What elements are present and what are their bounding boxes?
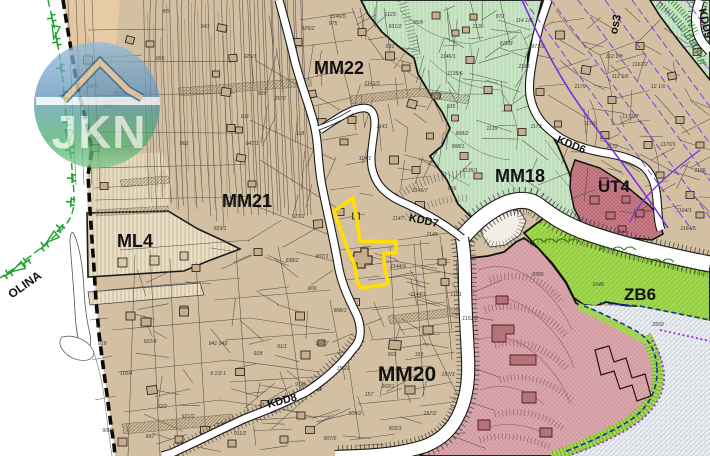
svg-text:1139: 1139 [486,126,497,132]
svg-text:923/2: 923/2 [292,214,305,220]
svg-text:1170/1: 1170/1 [660,142,676,148]
svg-text:157: 157 [365,392,375,398]
svg-text:8356: 8356 [532,272,544,278]
svg-text:902/3: 902/3 [389,426,402,432]
svg-text:1141/2: 1141/2 [364,81,380,87]
svg-text:1164/1: 1164/1 [676,208,692,214]
svg-text:1648: 1648 [592,282,604,288]
svg-text:909/2: 909/2 [349,411,362,417]
svg-text:1171/3: 1171/3 [622,114,638,120]
svg-text:911: 911 [241,114,249,120]
svg-text:911/2: 911/2 [234,431,247,437]
svg-text:931/2: 931/2 [389,24,402,30]
svg-text:921/2: 921/2 [182,414,195,420]
svg-text:902/1: 902/1 [382,384,395,390]
svg-text:935: 935 [447,104,456,110]
svg-text:155: 155 [415,352,424,358]
svg-text:907/1: 907/1 [316,254,329,260]
svg-text:1146/5: 1146/5 [330,14,346,20]
svg-text:908/7: 908/7 [316,341,330,347]
svg-text:923/4: 923/4 [224,201,237,207]
svg-text:1151: 1151 [450,292,461,298]
svg-text:962: 962 [180,141,189,147]
svg-text:116/4: 116/4 [120,371,133,377]
svg-text:1144/9: 1144/9 [390,264,406,270]
svg-text:947/1: 947/1 [246,141,259,147]
svg-text:1167/2: 1167/2 [632,62,648,68]
svg-text:931: 931 [386,44,395,50]
svg-text:955: 955 [156,56,165,62]
svg-text:112 1/6: 112 1/6 [612,74,629,80]
svg-text:897: 897 [146,434,156,440]
svg-text:1164/5: 1164/5 [680,226,696,232]
svg-text:939: 939 [258,91,267,97]
svg-text:925/2: 925/2 [302,26,315,32]
svg-text:ML4: ML4 [117,231,153,251]
svg-text:117/1: 117/1 [584,121,597,127]
svg-text:1165: 1165 [694,168,705,174]
svg-text:2572: 2572 [273,96,286,102]
svg-text:1148: 1148 [426,232,437,238]
svg-text:941 942: 941 942 [209,341,228,347]
svg-text:923/1: 923/1 [214,226,227,232]
svg-text:972: 972 [496,14,505,20]
svg-text:157/3: 157/3 [442,372,455,378]
svg-text:919: 919 [98,341,107,347]
svg-text:922/4: 922/4 [144,339,157,345]
svg-text:91/1: 91/1 [277,344,287,350]
svg-text:1146/1: 1146/1 [440,54,456,60]
svg-text:1135: 1135 [518,64,529,70]
svg-text:1136: 1136 [472,24,483,30]
svg-text:1135/1: 1135/1 [462,168,478,174]
svg-text:1141: 1141 [376,124,387,130]
svg-text:112 1/8: 112 1/8 [606,54,623,60]
svg-text:MM18: MM18 [495,166,545,186]
svg-text:91/8: 91/8 [295,382,305,388]
svg-text:966: 966 [448,186,457,192]
svg-text:975: 975 [329,21,338,27]
svg-text:1135/6: 1135/6 [447,71,463,77]
svg-text:1147: 1147 [392,216,404,222]
svg-text:118: 118 [296,131,304,137]
svg-text:903: 903 [388,352,397,358]
svg-text:968/2: 968/2 [456,131,469,137]
svg-text:9 1/3 1: 9 1/3 1 [210,371,226,377]
svg-text:933: 933 [433,94,442,100]
svg-text:ZB6: ZB6 [624,285,656,304]
svg-text:907/5: 907/5 [324,436,337,442]
svg-text:9/8/3: 9/8/3 [102,428,114,434]
svg-text:12 1/6: 12 1/6 [651,84,666,90]
svg-text:MM22: MM22 [314,58,364,78]
svg-text:8/5: 8/5 [162,9,169,15]
svg-text:1172: 1172 [606,144,617,150]
svg-text:908/1: 908/1 [334,308,347,314]
svg-text:925/1: 925/1 [244,54,257,60]
svg-text:1151/2: 1151/2 [462,316,478,322]
svg-text:972/2: 972/2 [532,44,545,50]
svg-text:MM20: MM20 [378,363,436,386]
svg-text:1123: 1123 [384,12,395,18]
svg-text:157/2: 157/2 [424,411,437,417]
svg-text:2559: 2559 [651,322,664,328]
svg-text:1146/7: 1146/7 [412,188,429,194]
svg-text:1179: 1179 [574,84,585,90]
svg-text:1144/1: 1144/1 [410,292,426,298]
svg-text:1173: 1173 [530,124,541,130]
svg-text:155/2: 155/2 [337,366,350,372]
svg-text:UT4: UT4 [598,177,631,196]
svg-text:909: 909 [308,286,317,292]
svg-text:114/1: 114/1 [359,156,372,162]
svg-text:JKN: JKN [51,106,146,158]
svg-text:92/2: 92/2 [157,404,167,410]
svg-text:938/2: 938/2 [286,258,299,264]
svg-text:114 1/8: 114 1/8 [516,18,533,24]
svg-text:968/1: 968/1 [452,144,465,150]
svg-text:95/9: 95/9 [413,20,423,26]
svg-text:943: 943 [201,24,210,30]
svg-text:918: 918 [254,351,263,357]
svg-text:972/3: 972/3 [500,41,513,47]
